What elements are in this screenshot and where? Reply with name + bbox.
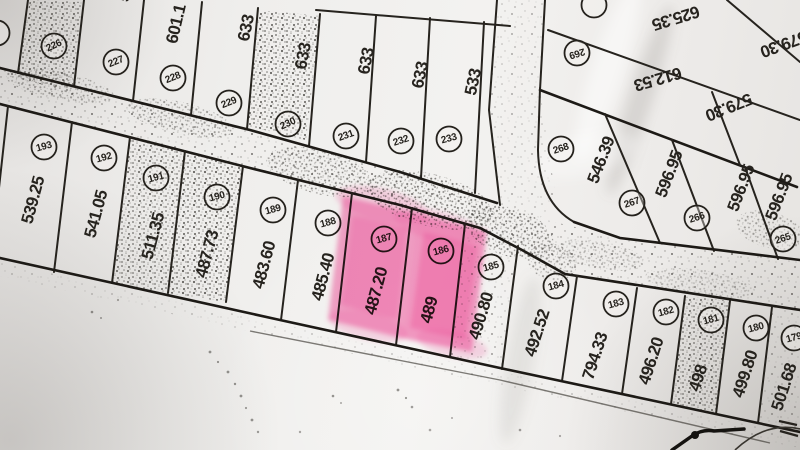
parcel-226: 226 <box>42 34 67 59</box>
cadastral-map: 2262275228601.12296332306332316332326332… <box>0 0 800 450</box>
parcel-number-circle <box>582 0 607 18</box>
cadastral-map-photo: 2262275228601.12296332306332316332326332… <box>0 0 800 450</box>
